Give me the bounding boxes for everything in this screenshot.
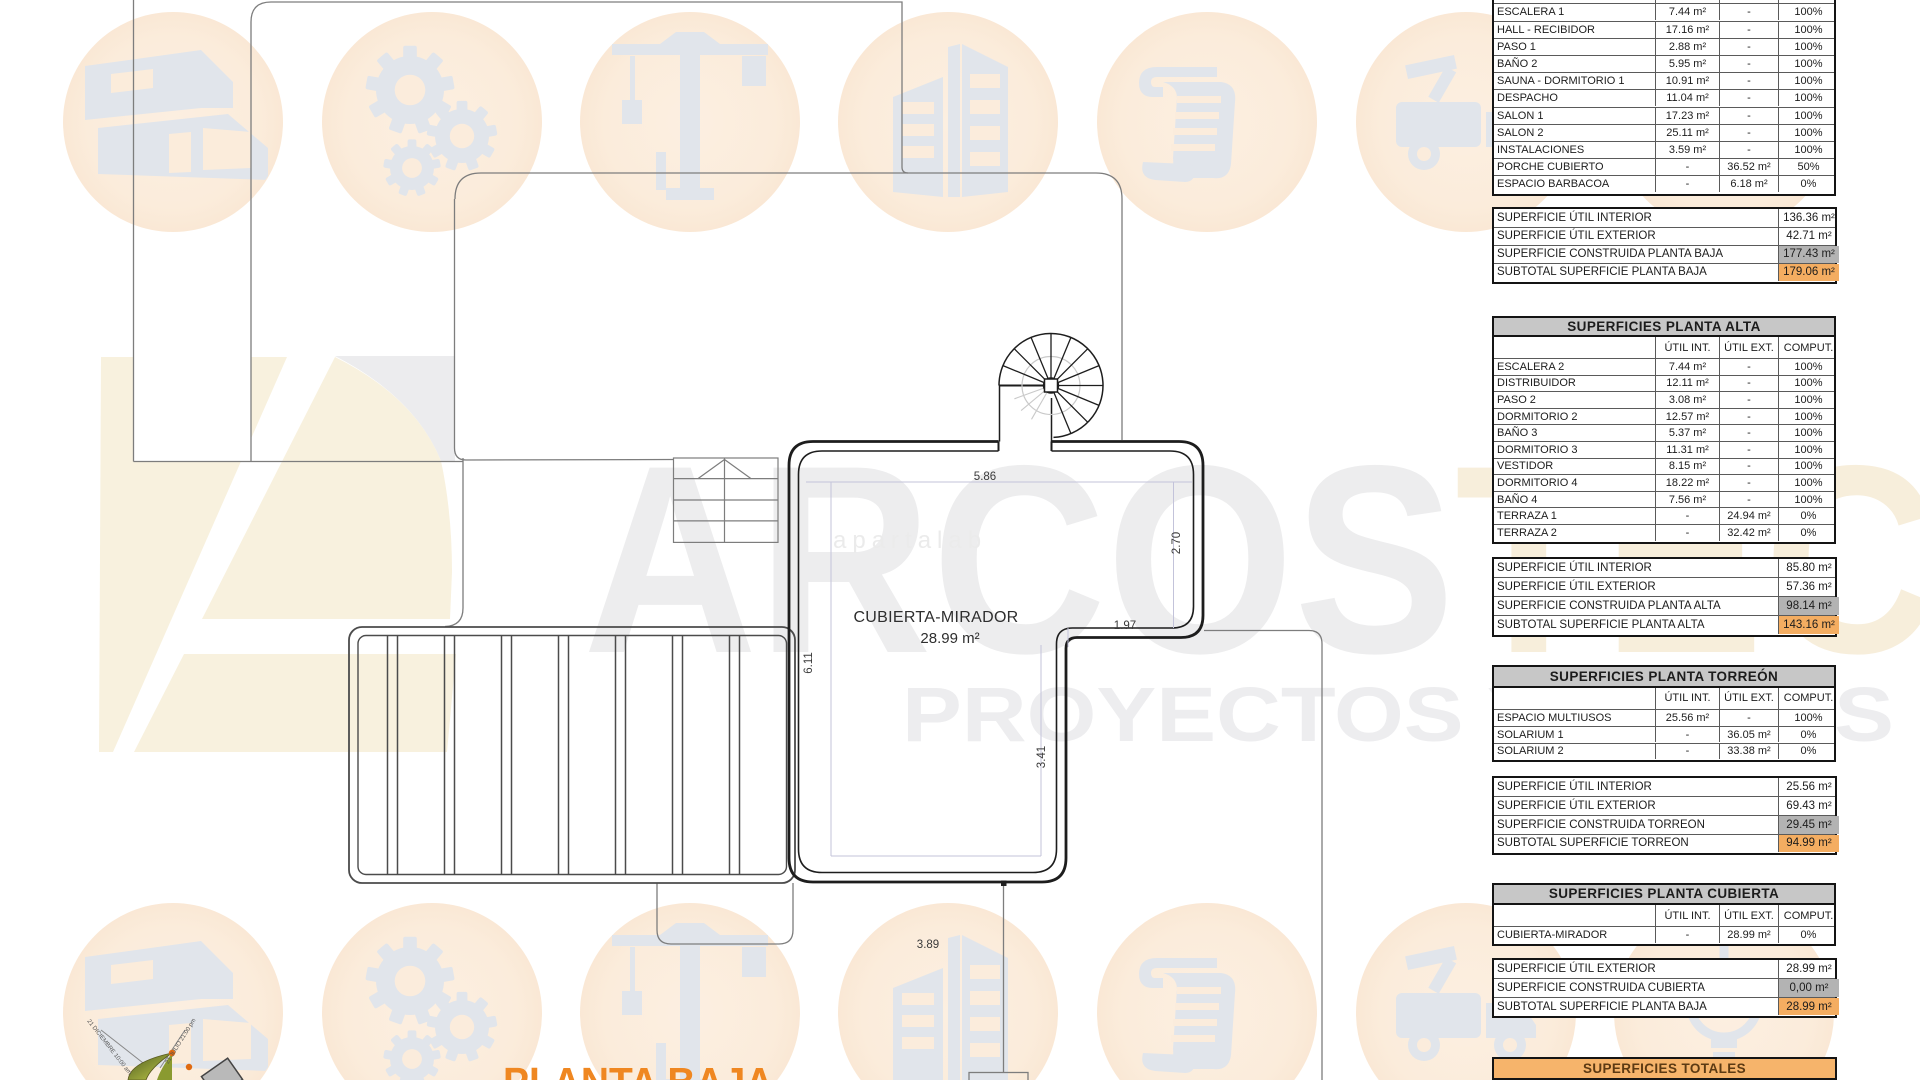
svg-text:apartalab: apartalab: [833, 527, 987, 554]
svg-text:28.99 m²: 28.99 m²: [920, 630, 979, 647]
svg-text:2.70: 2.70: [1171, 532, 1183, 554]
svg-text:3.41: 3.41: [1036, 746, 1048, 768]
svg-text:PLANTA BAJA: PLANTA BAJA: [503, 1060, 773, 1080]
svg-text:1.97: 1.97: [1114, 620, 1136, 632]
svg-text:5.86: 5.86: [974, 471, 996, 483]
svg-text:6.11: 6.11: [803, 652, 815, 674]
svg-text:CUBIERTA-MIRADOR: CUBIERTA-MIRADOR: [853, 609, 1018, 626]
svg-text:3.89: 3.89: [917, 939, 939, 951]
